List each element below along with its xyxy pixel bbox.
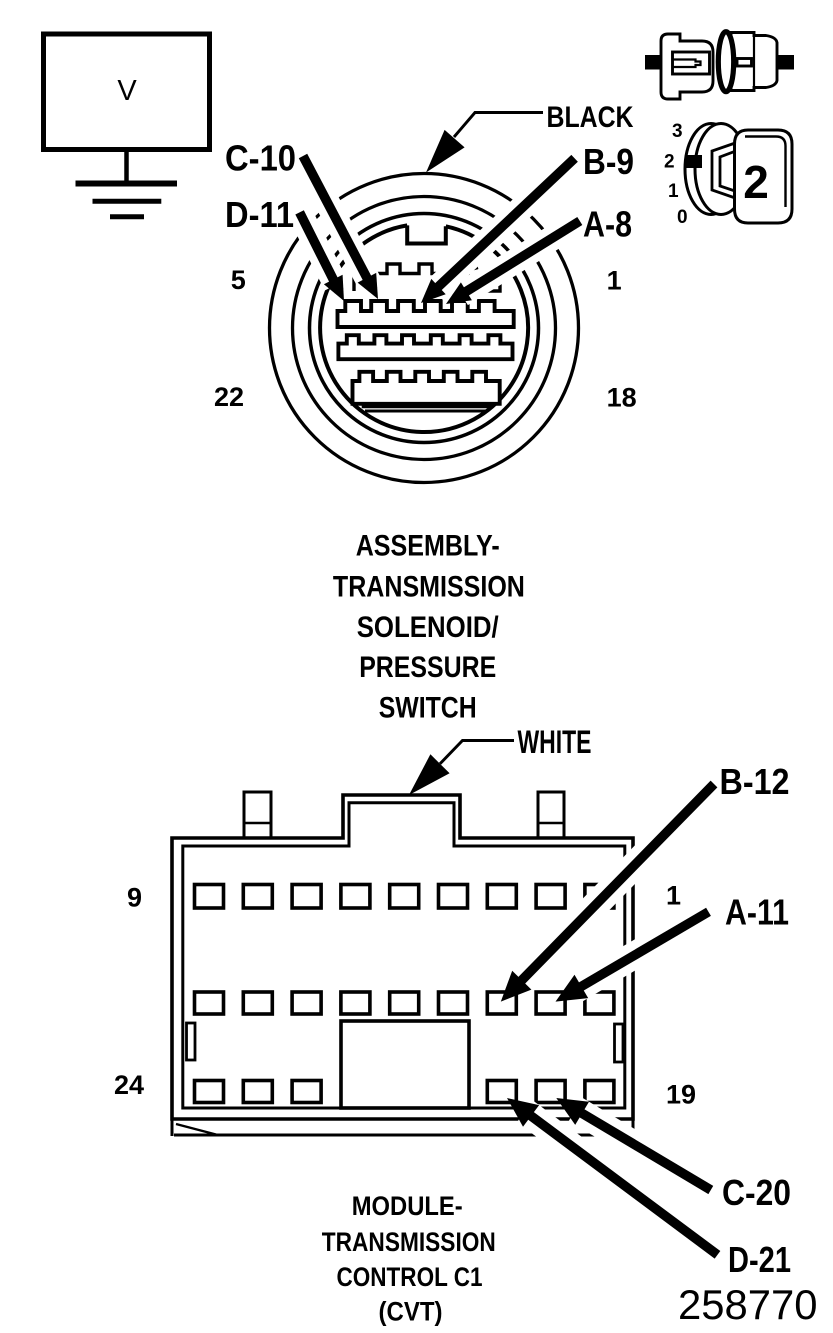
svg-text:A-11: A-11 — [725, 892, 789, 933]
svg-text:TRANSMISSION: TRANSMISSION — [322, 1227, 496, 1257]
svg-text:PRESSURE: PRESSURE — [359, 651, 496, 684]
svg-text:24: 24 — [114, 1070, 144, 1100]
svg-text:18: 18 — [607, 383, 637, 413]
svg-text:5: 5 — [231, 265, 246, 295]
svg-text:TRANSMISSION: TRANSMISSION — [333, 570, 525, 603]
svg-text:19: 19 — [666, 1080, 696, 1110]
svg-text:D-21: D-21 — [728, 1239, 791, 1280]
svg-text:V: V — [117, 75, 137, 107]
svg-text:A-8: A-8 — [583, 204, 632, 245]
svg-text:B-12: B-12 — [720, 761, 790, 802]
svg-text:2: 2 — [743, 156, 769, 208]
svg-text:C-10: C-10 — [225, 138, 296, 179]
svg-text:MODULE-: MODULE- — [352, 1191, 463, 1221]
svg-text:22: 22 — [214, 382, 244, 412]
svg-text:1: 1 — [668, 181, 679, 202]
svg-text:1: 1 — [607, 265, 622, 295]
svg-text:C-20: C-20 — [722, 1172, 791, 1213]
svg-text:(CVT): (CVT) — [379, 1297, 443, 1327]
svg-text:0: 0 — [677, 207, 688, 228]
svg-text:1: 1 — [666, 881, 681, 911]
svg-text:9: 9 — [127, 883, 142, 913]
svg-text:SOLENOID/: SOLENOID/ — [357, 611, 500, 644]
svg-text:ASSEMBLY-: ASSEMBLY- — [356, 530, 500, 563]
svg-text:2: 2 — [664, 152, 675, 173]
svg-text:258770: 258770 — [678, 1281, 818, 1328]
svg-text:SWITCH: SWITCH — [379, 691, 477, 724]
svg-text:3: 3 — [672, 121, 683, 142]
svg-text:B-9: B-9 — [583, 141, 634, 182]
svg-text:BLACK: BLACK — [547, 101, 634, 134]
svg-text:D-11: D-11 — [225, 194, 294, 235]
svg-text:CONTROL C1: CONTROL C1 — [337, 1262, 483, 1292]
svg-text:WHITE: WHITE — [518, 724, 592, 760]
